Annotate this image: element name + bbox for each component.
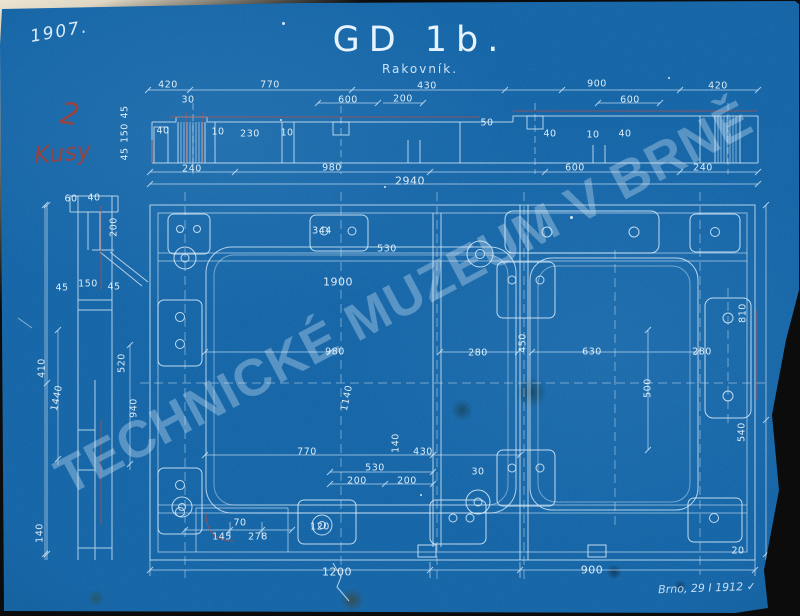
dimension-label: 410 [37,358,48,378]
dimension-label: 240 [182,164,202,175]
dimension-label: 30 [471,467,484,478]
quantity-number: 2 [58,96,94,135]
dimension-label: 280 [692,347,712,358]
dimension-label: 430 [417,81,437,92]
drawing-title: GD 1b. [333,20,508,60]
red-quantity-note: 2 Kusy [34,98,91,167]
dimension-label: 600 [338,95,358,106]
dimension-label: 150 [78,279,98,290]
dimension-label: 520 [117,353,128,373]
dimension-label: 450 [518,333,529,353]
paper-speck [420,494,422,496]
dimension-label: 200 [397,476,417,487]
dimension-label: 200 [347,476,367,487]
dimension-label: 140 [35,523,46,543]
dimension-label: 120 [310,522,330,533]
scanned-blueprint: TECHNICKÉ MUZEUM V BRNĚ GD 1b. Rakovník.… [0,0,800,616]
dimension-label: 600 [620,95,640,106]
dimension-label: 40 [156,126,169,137]
dimension-label: 980 [322,163,342,174]
dimension-label: 540 [737,422,748,442]
dimension-label: 60 [64,194,77,205]
dimension-label: 30 [181,95,194,106]
paper-speck [384,186,386,188]
dimension-label: 810 [738,303,749,323]
dimension-label: 40 [87,193,100,204]
dimension-label: 940 [129,398,140,418]
dimension-label: 50 [480,118,493,129]
dimension-label: 150 [120,123,131,143]
dimension-label: 900 [581,564,604,577]
dimension-label: 140 [391,433,402,453]
dimension-label: 420 [158,80,178,91]
dimension-label: 45 [107,282,120,293]
dimension-label: 1200 [322,566,352,579]
dimension-label: 45 [120,105,131,118]
dimension-label: 240 [693,163,713,174]
dimension-label: 45 [55,283,68,294]
dimension-label: 770 [297,447,317,458]
dimension-label: 2940 [395,175,425,188]
dimension-label: 900 [587,79,607,90]
dimension-label: 10 [586,130,599,141]
dimension-label: 630 [582,347,602,358]
paper-speck [282,22,285,25]
dimension-label: 278 [248,532,268,543]
dimension-label: 280 [468,348,488,359]
dimension-label: 40 [543,129,556,140]
dimension-label: 600 [565,163,585,174]
dimension-label: 530 [377,244,397,255]
dimension-label: 40 [618,129,631,140]
dimension-label: 530 [365,463,385,474]
dimension-label: 500 [643,378,654,398]
dimension-label: 980 [325,347,345,358]
dimension-label: 420 [708,81,728,92]
drawing-subtitle: Rakovník. [333,62,508,76]
paper-speck [280,119,282,121]
dimension-label: 344 [312,226,332,237]
title-block: GD 1b. Rakovník. [333,20,508,76]
blueprint-paper: TECHNICKÉ MUZEUM V BRNĚ GD 1b. Rakovník.… [0,0,800,616]
dimension-label: 1900 [323,276,353,289]
dimension-label: 20 [731,546,744,557]
dimension-label: 10 [280,128,293,139]
dimension-label: 200 [109,217,120,237]
paper-speck [668,77,670,79]
dimension-label: 200 [393,94,413,105]
paper-speck [570,216,573,219]
dimension-label: 145 [212,532,232,543]
dimension-label: 45 [120,147,131,160]
dimension-label: 430 [413,447,433,458]
dimension-label: 70 [233,518,246,529]
quantity-word: Kusy [33,137,92,170]
dimension-label: 10 [211,127,224,138]
dimension-label: 230 [240,129,260,140]
dimension-label: 770 [260,80,280,91]
